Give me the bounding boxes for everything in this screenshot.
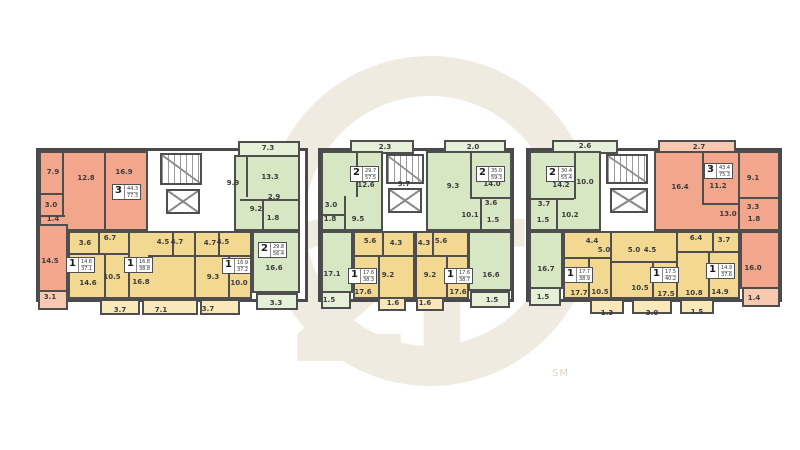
- room-area-label: 1.4: [748, 294, 760, 302]
- apartment-badge: 3 44.377.3: [112, 184, 141, 200]
- room-area-label: 10.8: [685, 289, 702, 297]
- room-area-label: 14.9: [711, 288, 728, 296]
- staircase-icon: [606, 154, 648, 184]
- room-area-label: 10.0: [576, 178, 593, 186]
- room-area-label: 9.1: [747, 174, 759, 182]
- room-area-label: 4.7: [204, 239, 216, 247]
- room-area-label: 16.6: [482, 271, 499, 279]
- balcony: [142, 299, 198, 315]
- room-area-label: 2.9: [268, 193, 280, 201]
- room-area-label: 1.5: [486, 296, 498, 304]
- room-area-label: 17.6: [354, 288, 371, 296]
- room-area-label: 1.5: [691, 308, 703, 316]
- room-area-label: 10.5: [103, 273, 120, 281]
- room-area-label: 4.5: [217, 238, 229, 246]
- apartment-badge: 1 17.638.7: [444, 268, 473, 284]
- room-area-label: 5.6: [435, 237, 447, 245]
- apartment-badge: 2 30.455.4: [546, 166, 575, 182]
- room-area-label: 14.5: [41, 257, 58, 265]
- room-area-label: 12.8: [77, 174, 94, 182]
- room-area-label: 10.5: [631, 284, 648, 292]
- room-area-label: 1.5: [323, 296, 335, 304]
- room-area-label: 3.3: [747, 203, 759, 211]
- room-area-label: 6.4: [690, 234, 702, 242]
- room-area-label: 4.4: [586, 237, 598, 245]
- room-area-label: 13.3: [261, 173, 278, 181]
- room-area-label: 16.4: [671, 183, 688, 191]
- room-area-label: 3.7: [114, 306, 126, 314]
- room-area-label: 9.3: [447, 182, 459, 190]
- apartment-2room-green-wing: [529, 231, 563, 289]
- watermark-sm-mark: SM: [552, 368, 569, 379]
- elevator-icon: [388, 188, 422, 213]
- elevator-icon: [610, 188, 648, 213]
- room-area-label: 3.1: [44, 293, 56, 301]
- room-area-label: 5.6: [364, 237, 376, 245]
- apartment-badge: 1 16.838.8: [124, 257, 153, 273]
- room-area-label: 2.6: [579, 142, 591, 150]
- apartment-badge: 1 14.637.1: [66, 257, 95, 273]
- room-area-label: 7.1: [155, 306, 167, 314]
- room-area-label: 4.5: [157, 238, 169, 246]
- room-area-label: 7.9: [47, 168, 59, 176]
- apartment-2room-green-wing: [252, 231, 300, 293]
- room-area-label: 1.5: [537, 293, 549, 301]
- room-area-label: 2.0: [467, 143, 479, 151]
- room-area-label: 13.0: [719, 210, 736, 218]
- room-area-label: 3.6: [79, 239, 91, 247]
- room-area-label: 11.2: [709, 182, 726, 190]
- room-area-label: 1.8: [748, 215, 760, 223]
- room-area-label: 4.3: [418, 239, 430, 247]
- room-area-label: 9.7: [398, 180, 410, 188]
- room-area-label: 10.1: [461, 211, 478, 219]
- room-area-label: 16.7: [537, 265, 554, 273]
- room-area-label: 5.0: [628, 246, 640, 254]
- room-area-label: 6.7: [104, 234, 116, 242]
- room-area-label: 7.3: [262, 144, 274, 152]
- apartment-badge: 1 16.937.2: [222, 258, 251, 274]
- apartment-badge: 1 14.937.6: [706, 263, 735, 279]
- room-area-label: 16.0: [744, 264, 761, 272]
- room-area-label: 1.6: [387, 299, 399, 307]
- room-area-label: 14.6: [79, 279, 96, 287]
- room-area-label: 9.2: [424, 271, 436, 279]
- room-area-label: 10.2: [561, 211, 578, 219]
- room-area-label: 17.7: [570, 289, 587, 297]
- room-area-label: 17.6: [449, 288, 466, 296]
- room-area-label: 1.4: [47, 215, 59, 223]
- room-area-label: 14.2: [552, 181, 569, 189]
- room-area-label: 3.0: [646, 309, 658, 317]
- room-area-label: 1.6: [419, 299, 431, 307]
- apartment-badge: 2 29.856.4: [258, 242, 287, 258]
- apartment-badge: 2 35.059.3: [476, 166, 505, 182]
- room-area-label: 1.8: [324, 215, 336, 223]
- room-area-label: 4.7: [171, 238, 183, 246]
- room-area-label: 1.5: [487, 216, 499, 224]
- room-area-label: 9.3: [207, 273, 219, 281]
- floor-plan: 2Г SM 7.9 12.8 16.9 3.0 1.4 14.5 3.1 7.3…: [0, 0, 800, 450]
- room-area-label: 3.7: [718, 236, 730, 244]
- staircase-icon: [160, 153, 202, 185]
- room-area-label: 16.6: [265, 264, 282, 272]
- room-area-label: 4.3: [390, 239, 402, 247]
- apartment-badge: 1 17.738.9: [564, 267, 593, 283]
- room-area-label: 3.3: [270, 299, 282, 307]
- room-area-label: 3.0: [325, 201, 337, 209]
- room-area-label: 9.2: [382, 271, 394, 279]
- apartment-badge: 1 17.540.2: [650, 267, 679, 283]
- room-area-label: 9.9: [227, 179, 239, 187]
- apartment-badge: 1 17.638.3: [348, 268, 377, 284]
- apartment-badge: 2 29.757.5: [350, 166, 379, 182]
- room-area-label: 5.0: [598, 246, 610, 254]
- room-area-label: 3.0: [45, 201, 57, 209]
- apartment-3room-orange-wing: [740, 231, 780, 289]
- room-area-label: 1.3: [601, 309, 613, 317]
- room-area-label: 9.5: [352, 215, 364, 223]
- room-area-label: 3.7: [538, 200, 550, 208]
- room-area-label: 16.9: [115, 168, 132, 176]
- room-area-label: 10.5: [591, 288, 608, 296]
- room-area-label: 1.5: [537, 216, 549, 224]
- room-area-label: 9.2: [250, 205, 262, 213]
- elevator-icon: [166, 189, 200, 214]
- room-area-label: 12.6: [357, 181, 374, 189]
- room-area-label: 4.5: [644, 246, 656, 254]
- apartment-2room-green-wing: [468, 231, 512, 291]
- room-area-label: 3.6: [485, 199, 497, 207]
- room-area-label: 1.8: [267, 214, 279, 222]
- room-area-label: 3.7: [202, 305, 214, 313]
- room-area-label: 17.1: [323, 270, 340, 278]
- room-area-label: 2.3: [379, 143, 391, 151]
- room-area-label: 2.7: [693, 143, 705, 151]
- room-area-label: 10.0: [230, 279, 247, 287]
- room-area-label: 17.5: [657, 290, 674, 298]
- apartment-badge: 3 43.475.3: [704, 163, 733, 179]
- room-area-label: 16.8: [132, 278, 149, 286]
